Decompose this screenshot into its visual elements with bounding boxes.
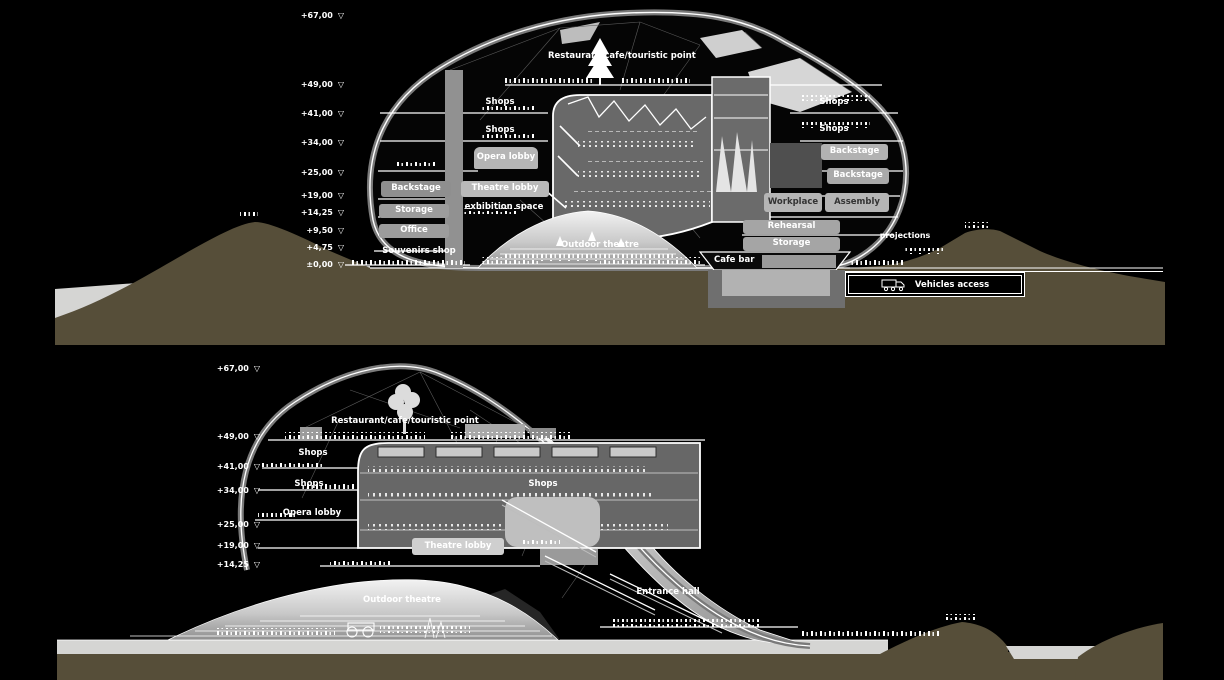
room-label-assembly: Assembly xyxy=(825,193,889,212)
room-label-souvenirs-shop: Souvenirs shop xyxy=(372,247,466,256)
room-label-shops: Shops xyxy=(468,126,532,135)
room-label-shops: Shops xyxy=(284,480,334,489)
room-label-shops: Shops xyxy=(802,125,866,134)
room-label-workplace: Workplace xyxy=(764,193,822,212)
level-marker-icon: ▽ xyxy=(254,541,260,550)
room-label-outdoor-theatre: Outdoor theatre xyxy=(352,596,452,605)
room-label-shops: Shops xyxy=(802,98,866,107)
elevation-marker: +14,25▽ xyxy=(272,208,344,217)
level-marker-icon: ▽ xyxy=(338,243,344,252)
level-marker-icon: ▽ xyxy=(254,486,260,495)
elevation-label: +67,00 xyxy=(217,364,249,373)
elevation-marker: +19,00▽ xyxy=(188,541,260,550)
room-label-office: Office xyxy=(379,224,449,238)
room-label-backstage: Backstage xyxy=(821,144,888,160)
vehicles-access-box: Vehicles access xyxy=(845,272,1025,297)
elevation-marker: ±0,00▽ xyxy=(272,260,344,269)
elevation-marker: +34,00▽ xyxy=(188,486,260,495)
vehicles-access-label: Vehicles access xyxy=(915,280,989,290)
elevation-label: ±0,00 xyxy=(306,260,332,269)
elevation-label: +67,00 xyxy=(301,11,333,20)
elevation-marker: +14,25▽ xyxy=(188,560,260,569)
room-label-shops: Shops xyxy=(288,449,338,458)
level-marker-icon: ▽ xyxy=(338,80,344,89)
level-marker-icon: ▽ xyxy=(254,520,260,529)
elevation-marker: +41,00▽ xyxy=(272,109,344,118)
elevation-label: +25,00 xyxy=(301,168,333,177)
elevation-label: +14,25 xyxy=(217,560,249,569)
elevation-marker: +49,00▽ xyxy=(188,432,260,441)
room-label-shops: Shops xyxy=(468,98,532,107)
room-label-restaurant: Restaurant/cafe/touristic point xyxy=(548,52,693,61)
elevation-label: +49,00 xyxy=(217,432,249,441)
level-marker-icon: ▽ xyxy=(338,11,344,20)
elevation-marker: +67,00▽ xyxy=(188,364,260,373)
room-label-projections: projections xyxy=(870,232,940,241)
level-marker-icon: ▽ xyxy=(338,138,344,147)
level-marker-icon: ▽ xyxy=(338,168,344,177)
room-label-theatre-lobby: Theatre lobby xyxy=(412,538,504,555)
elevation-label: +9,50 xyxy=(306,226,332,235)
room-label-storage: Storage xyxy=(743,237,840,251)
room-label-theatre-lobby: Theatre lobby xyxy=(461,181,549,197)
elevation-label: +41,00 xyxy=(217,462,249,471)
room-label-cafe-bar: Cafe bar xyxy=(714,256,774,265)
elevation-label: +14,25 xyxy=(301,208,333,217)
elevation-label: +34,00 xyxy=(301,138,333,147)
elevation-label: +19,00 xyxy=(217,541,249,550)
elevation-label: +34,00 xyxy=(217,486,249,495)
room-label-backstage: Backstage xyxy=(827,168,889,184)
room-label-exhibition-space: exhibition space xyxy=(452,203,556,212)
labels-overlay: +67,00▽ +49,00▽ +41,00▽ +34,00▽ +25,00▽ … xyxy=(0,0,1224,680)
room-label-restaurant: Restaurant/cafe/touristic point xyxy=(330,417,480,426)
architectural-sections-canvas: +67,00▽ +49,00▽ +41,00▽ +34,00▽ +25,00▽ … xyxy=(0,0,1224,680)
level-marker-icon: ▽ xyxy=(338,226,344,235)
level-marker-icon: ▽ xyxy=(338,109,344,118)
elevation-marker: +41,00▽ xyxy=(188,462,260,471)
room-label-opera-lobby: Opera lobby xyxy=(276,509,348,518)
room-label-storage: Storage xyxy=(379,204,449,218)
elevation-marker: +4,75▽ xyxy=(272,243,344,252)
room-label-backstage: Backstage xyxy=(381,181,451,197)
level-marker-icon: ▽ xyxy=(338,260,344,269)
room-label-opera-lobby: Opera lobby xyxy=(474,147,538,169)
elevation-label: +25,00 xyxy=(217,520,249,529)
elevation-marker: +9,50▽ xyxy=(272,226,344,235)
truck-icon xyxy=(881,277,907,292)
elevation-label: +4,75 xyxy=(306,243,332,252)
elevation-marker: +25,00▽ xyxy=(272,168,344,177)
level-marker-icon: ▽ xyxy=(338,191,344,200)
elevation-label: +49,00 xyxy=(301,80,333,89)
elevation-marker: +67,00▽ xyxy=(272,11,344,20)
level-marker-icon: ▽ xyxy=(338,208,344,217)
room-label-outdoor-theatre: Outdoor theatre xyxy=(552,241,648,250)
elevation-marker: +19,00▽ xyxy=(272,191,344,200)
elevation-marker: +49,00▽ xyxy=(272,80,344,89)
elevation-marker: +34,00▽ xyxy=(272,138,344,147)
room-label-entrance-hall: Entrance hall xyxy=(622,588,714,597)
elevation-label: +19,00 xyxy=(301,191,333,200)
level-marker-icon: ▽ xyxy=(254,364,260,373)
level-marker-icon: ▽ xyxy=(254,560,260,569)
level-marker-icon: ▽ xyxy=(254,462,260,471)
room-label-rehearsal: Rehearsal xyxy=(743,220,840,234)
elevation-label: +41,00 xyxy=(301,109,333,118)
room-label-shops: Shops xyxy=(518,480,568,489)
level-marker-icon: ▽ xyxy=(254,432,260,441)
elevation-marker: +25,00▽ xyxy=(188,520,260,529)
